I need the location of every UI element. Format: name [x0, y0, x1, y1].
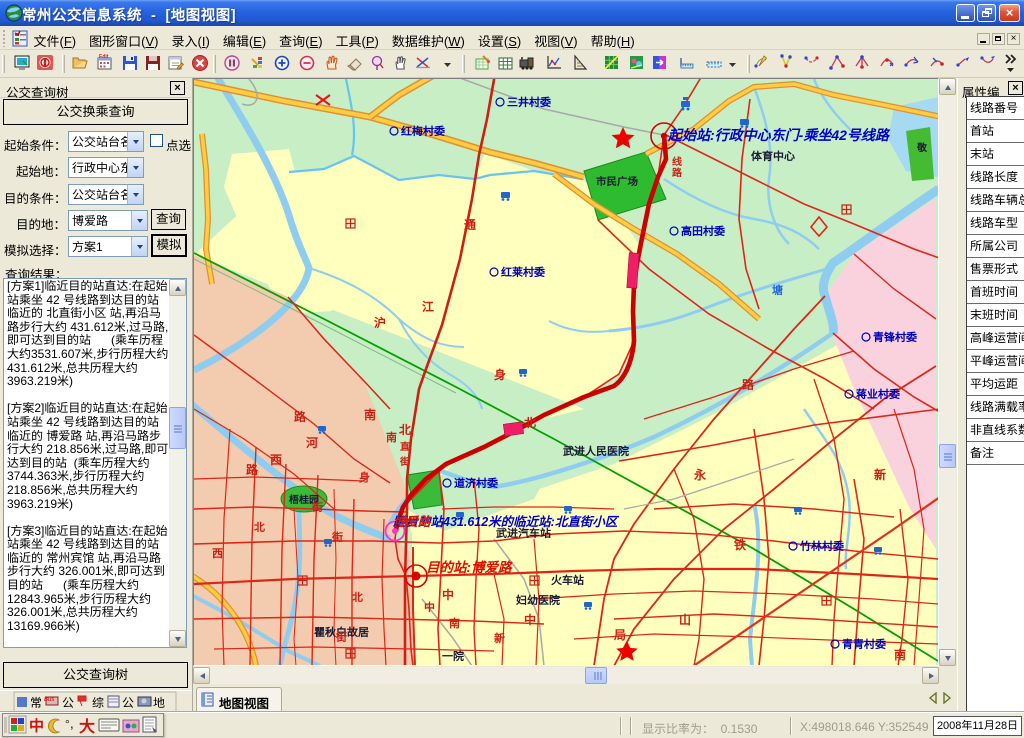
svg-text:身: 身 [359, 470, 370, 484]
svg-text:局: 局 [614, 628, 626, 642]
svg-text:公: 公 [122, 696, 134, 710]
svg-text:红梅村委: 红梅村委 [401, 125, 446, 138]
svg-text:北: 北 [254, 521, 265, 534]
svg-text:红莱村委: 红莱村委 [501, 266, 546, 279]
svg-text:中: 中 [29, 718, 44, 735]
svg-text:永: 永 [693, 467, 706, 482]
svg-text:铁: 铁 [734, 537, 746, 552]
svg-text:道济村委: 道济村委 [454, 477, 499, 490]
svg-text:中: 中 [424, 601, 435, 614]
svg-text:妇幼医院: 妇幼医院 [515, 594, 560, 607]
svg-text:目的站:博爱路: 目的站:博爱路 [426, 560, 513, 575]
svg-text:路: 路 [246, 463, 259, 477]
svg-text:综: 综 [92, 696, 104, 710]
svg-text:中: 中 [524, 613, 536, 627]
svg-text:线: 线 [672, 156, 682, 168]
svg-text:西: 西 [212, 547, 223, 560]
svg-text:青青村委: 青青村委 [842, 638, 887, 651]
svg-text:高田村委: 高田村委 [681, 225, 726, 238]
svg-text:山: 山 [679, 612, 691, 627]
svg-text:南: 南 [449, 616, 460, 630]
svg-text:北: 北 [352, 591, 363, 604]
svg-text:路: 路 [294, 410, 307, 424]
svg-text:路: 路 [742, 378, 755, 392]
svg-text:地: 地 [153, 696, 165, 710]
svg-text:新: 新 [874, 467, 886, 482]
svg-text:直: 直 [400, 441, 410, 453]
svg-text:敬: 敬 [916, 142, 928, 154]
svg-text:武进人民医院: 武进人民医院 [563, 445, 629, 458]
svg-text:南: 南 [894, 647, 906, 662]
svg-text:塘: 塘 [772, 284, 783, 297]
svg-text:一院: 一院 [442, 650, 464, 663]
svg-text:起始站:行政中心东门-乘坐42号线路: 起始站:行政中心东门-乘坐42号线路 [667, 127, 891, 143]
svg-text:沪: 沪 [374, 316, 386, 330]
svg-text:南: 南 [386, 430, 397, 444]
svg-text:三井村委: 三井村委 [507, 96, 552, 109]
svg-text:竹林村委: 竹林村委 [799, 540, 845, 553]
svg-text:青锋村委: 青锋村委 [873, 331, 918, 344]
svg-text:中: 中 [442, 588, 454, 602]
svg-text:北: 北 [524, 416, 536, 430]
svg-text:火车站: 火车站 [551, 574, 584, 587]
svg-text:Edit: Edit [99, 54, 109, 60]
svg-text:大: 大 [79, 718, 95, 736]
svg-text:°,: °, [65, 715, 74, 731]
svg-text:路: 路 [672, 167, 683, 179]
svg-text:身: 身 [494, 367, 506, 382]
svg-text:西: 西 [270, 453, 282, 467]
svg-text:江: 江 [422, 300, 434, 314]
svg-text:Bus: Bus [44, 697, 54, 703]
svg-text:市民广场: 市民广场 [596, 175, 638, 188]
svg-text:街: 街 [311, 501, 323, 514]
svg-text:公: 公 [62, 696, 74, 710]
svg-text:河: 河 [305, 435, 318, 450]
svg-text:北: 北 [399, 423, 411, 437]
svg-text:常: 常 [30, 696, 42, 710]
svg-text:街: 街 [335, 631, 347, 644]
svg-text:街: 街 [331, 531, 343, 544]
svg-text:通: 通 [464, 218, 476, 232]
svg-text:南: 南 [364, 407, 376, 422]
svg-text:街: 街 [399, 456, 410, 468]
svg-text:蒋业村委: 蒋业村委 [856, 388, 901, 401]
svg-text:博爱路: 博爱路 [393, 515, 432, 529]
svg-text:体育中心: 体育中心 [751, 150, 795, 163]
svg-text:新: 新 [494, 631, 505, 645]
